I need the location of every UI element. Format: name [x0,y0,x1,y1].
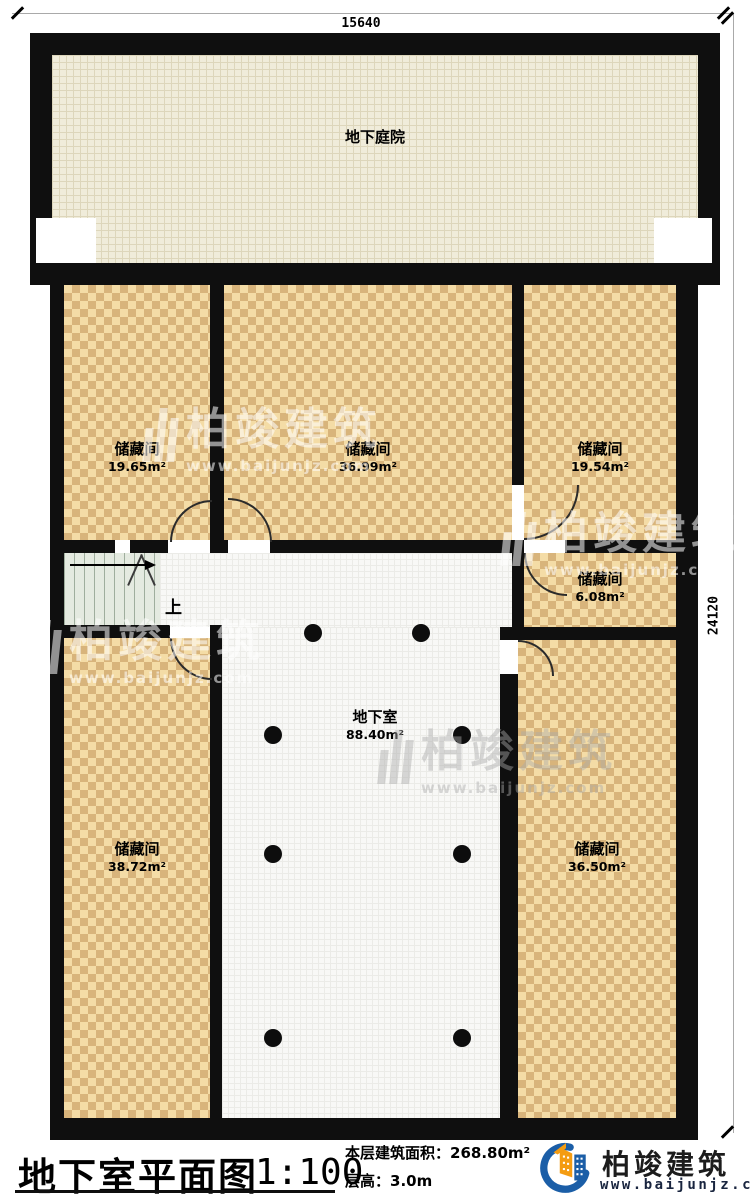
wall [500,627,518,640]
room-storage-n [224,285,512,540]
wall [30,263,720,285]
courtyard-notch [654,218,712,263]
room-label-storage-sw: 储藏间 38.72m² [64,840,210,874]
room-label-storage-n: 储藏间 36.99m² [224,440,512,474]
column-dot [264,1029,282,1047]
column-dot [304,624,322,642]
wall [130,540,168,553]
company-website: www.baijunjz.com [600,1177,750,1193]
wall [500,674,518,1118]
wall [50,285,64,1140]
right-dimension-label: 24120 [707,576,722,656]
courtyard-notch [36,218,96,263]
column-dot [453,1029,471,1047]
floor-area-line: 本层建筑面积：268.80m² [345,1142,530,1163]
wall [210,540,228,553]
floor-height-line: 层高：3.0m [345,1170,432,1191]
top-dimension-label: 15640 [300,16,422,31]
right-dimension-line [733,13,734,1133]
wall [50,625,170,638]
room-label-storage-ne: 储藏间 19.54m² [524,440,676,474]
stair-arrow-head [145,560,156,570]
wall [512,285,524,485]
wall [270,540,512,553]
room-courtyard [52,55,698,263]
column-dot [412,624,430,642]
stair-direction-arrow [70,564,146,566]
room-label-courtyard: 地下庭院 [275,128,475,147]
wall [210,625,222,1118]
room-storage-se [518,640,676,1118]
wall [676,285,698,1140]
room-label-storage-nw: 储藏间 19.65m² [64,440,210,474]
wall [565,540,676,553]
company-logo-icon [534,1141,598,1195]
column-dot [264,845,282,863]
room-label-storage-e: 储藏间 6.08m² [524,570,676,604]
wall [512,540,524,640]
stair-up-label: 上 [165,593,182,618]
top-dimension-line [12,13,733,14]
wall [512,627,676,640]
floor-plan-page: 15640 24120 上 [0,0,750,1197]
wall [30,33,720,55]
wall [50,540,115,553]
room-storage-sw [64,638,210,1118]
column-dot [453,845,471,863]
room-label-storage-se: 储藏间 36.50m² [518,840,676,874]
basement-corridor-floor [160,553,512,627]
room-storage-nw [64,285,210,540]
wall [50,1118,698,1140]
wall [210,285,224,540]
room-label-basement: 地下室 88.40m² [275,708,475,742]
